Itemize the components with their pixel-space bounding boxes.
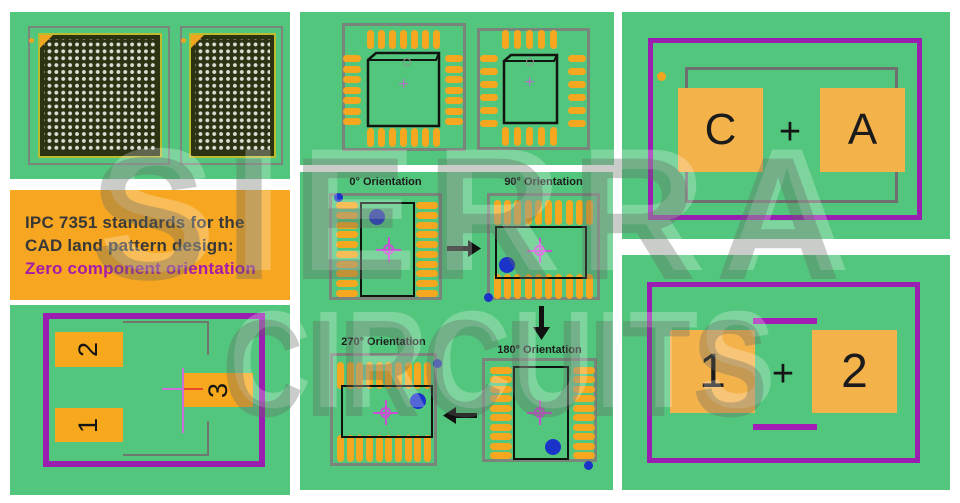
polarity-bar-top [753, 318, 817, 324]
pads-bottom [337, 435, 431, 462]
qfp-panel [300, 12, 614, 165]
orientation-label-270: 270° Orientation [330, 336, 437, 348]
pad [343, 66, 361, 73]
pad [367, 128, 374, 147]
pad [378, 30, 385, 49]
pin1-marker-dot [545, 439, 561, 455]
pad [347, 435, 354, 462]
origin-crosshair-icon [381, 242, 396, 257]
pad [343, 118, 361, 125]
pads-top [494, 200, 593, 225]
footprint-180deg [482, 358, 597, 462]
pin1-dot-icon [29, 38, 34, 43]
one-two-panel: 1 + 2 [622, 255, 950, 490]
pad [416, 280, 438, 287]
chip-outline-bottom [123, 454, 209, 456]
chip-pad-1: 1 [55, 408, 123, 442]
pin1-dimple-icon [403, 58, 411, 66]
pad-2: 2 [812, 330, 897, 413]
chip-outline-right-lower [207, 421, 209, 456]
anode-pad: A [820, 88, 905, 172]
origin-crosshair-icon [532, 405, 547, 420]
ca-panel: C + A [622, 12, 950, 239]
pad [336, 202, 358, 209]
pad [336, 261, 358, 268]
pad [356, 435, 363, 462]
plus-sign: + [772, 111, 808, 154]
pad [376, 435, 383, 462]
pad [480, 120, 498, 127]
pad [573, 443, 595, 450]
pad [490, 367, 512, 374]
pad [336, 241, 358, 248]
orientation-label-90: 90° Orientation [487, 176, 600, 188]
pad-1-label: 1 [699, 344, 726, 399]
pad [422, 128, 429, 147]
pad [514, 30, 521, 49]
title-line-2: CAD land pattern design: [25, 234, 290, 257]
pad [480, 68, 498, 75]
pad [445, 97, 463, 104]
pads-right [573, 367, 595, 459]
orientation-panel: 0° Orientation 90° Orientation 270° Orie… [300, 172, 613, 490]
pad [400, 128, 407, 147]
chip-outline-right-upper [207, 321, 209, 355]
pin1-marker-dot [499, 257, 515, 273]
pad [395, 435, 402, 462]
plus-sign: + [765, 353, 801, 396]
pad [416, 290, 438, 297]
pad [343, 55, 361, 62]
pad [573, 433, 595, 440]
pad [573, 386, 595, 393]
pad [416, 202, 438, 209]
pad [445, 118, 463, 125]
pad [389, 30, 396, 49]
pad [526, 30, 533, 49]
pad-2-label: 2 [841, 344, 868, 399]
footprint-0deg [329, 193, 442, 300]
bga-panel [10, 12, 290, 179]
pad [502, 30, 509, 49]
bga-large-ball-grid [44, 39, 156, 152]
pad [343, 87, 361, 94]
chip-pad-3: 3 [184, 373, 253, 407]
center-plus-icon [399, 79, 408, 88]
pad [573, 395, 595, 402]
pad [416, 231, 438, 238]
pad [389, 128, 396, 147]
pad [416, 241, 438, 248]
pad [411, 128, 418, 147]
origin-crosshair-icon [532, 243, 547, 258]
corner-marker-dot [433, 359, 442, 368]
pad [568, 68, 586, 75]
pad [411, 30, 418, 49]
pads-left [490, 367, 512, 459]
pad [336, 280, 358, 287]
pad [337, 435, 344, 462]
pad [416, 270, 438, 277]
pad [366, 435, 373, 462]
orientation-label-0: 0° Orientation [329, 176, 442, 188]
cathode-label: C [705, 105, 737, 155]
pad [336, 290, 358, 297]
pad-1: 1 [670, 330, 755, 413]
pad [400, 30, 407, 49]
pad [385, 435, 392, 462]
pad [433, 30, 440, 49]
pad [445, 76, 463, 83]
pad [545, 200, 552, 225]
title-box: IPC 7351 standards for the CAD land patt… [10, 190, 290, 300]
pad [538, 30, 545, 49]
bga-large [38, 33, 162, 158]
pad [514, 200, 521, 225]
origin-crosshair-hline [162, 388, 184, 390]
pin1-dot-icon [181, 38, 186, 43]
center-plus-icon [525, 77, 534, 86]
pad [445, 87, 463, 94]
bga-small [189, 33, 276, 158]
pad [480, 94, 498, 101]
pad [586, 274, 593, 299]
pad [555, 200, 562, 225]
anode-label: A [848, 105, 877, 155]
pad [480, 81, 498, 88]
origin-crosshair-vline [182, 368, 184, 433]
polarity-bar-bottom [753, 424, 817, 430]
pad [416, 212, 438, 219]
pad [343, 97, 361, 104]
qfp-large-pads-right [445, 55, 463, 125]
bga-small-ball-grid [195, 39, 270, 152]
qfp-small-pads-top [502, 30, 557, 49]
pad [494, 200, 501, 225]
pad [504, 200, 511, 225]
pad [445, 55, 463, 62]
pad [490, 414, 512, 421]
pads-right [416, 202, 438, 297]
arrow-right-icon [447, 240, 481, 257]
pad [422, 30, 429, 49]
qfp-large-pads-bottom [367, 128, 440, 147]
pad [490, 424, 512, 431]
pad [336, 222, 358, 229]
pad [573, 405, 595, 412]
pin1-corner-marker-icon [191, 35, 204, 48]
pin1-marker-dot [369, 209, 385, 225]
pad [343, 108, 361, 115]
pad [490, 395, 512, 402]
corner-marker-dot [584, 461, 593, 470]
pad [490, 386, 512, 393]
pin1-dimple-icon [526, 58, 534, 66]
qfp-small-pads-right [568, 55, 586, 127]
pad [433, 128, 440, 147]
chip-pad-3-label: 3 [203, 382, 234, 397]
pad [573, 376, 595, 383]
pad [416, 261, 438, 268]
pad [502, 127, 509, 146]
pad [414, 435, 421, 462]
pad [480, 107, 498, 114]
pad [424, 435, 431, 462]
pad [378, 128, 385, 147]
footprint-90deg [487, 193, 600, 300]
footprint-270deg [330, 353, 437, 466]
pad [568, 107, 586, 114]
infographic-canvas: IPC 7351 standards for the CAD land patt… [0, 0, 960, 503]
arrow-down-icon [533, 306, 550, 340]
pad [343, 76, 361, 83]
pad [405, 435, 412, 462]
pad [336, 231, 358, 238]
pad [490, 405, 512, 412]
corner-marker-dot [334, 193, 343, 202]
chip-pad-1-label: 1 [74, 417, 105, 432]
origin-crosshair-red-segment [184, 388, 203, 390]
pads-left [336, 202, 358, 297]
pad [490, 376, 512, 383]
pad [336, 212, 358, 219]
pad [568, 94, 586, 101]
pad [538, 127, 545, 146]
pad [568, 81, 586, 88]
pad [336, 251, 358, 258]
pad [490, 433, 512, 440]
pad [490, 452, 512, 459]
qfp-large-pads-left [343, 55, 361, 125]
chip-pad-2-label: 2 [74, 342, 105, 357]
qfp-small-pads-left [480, 55, 498, 127]
pad [568, 120, 586, 127]
pin1-marker-dot [410, 393, 426, 409]
pad [535, 200, 542, 225]
orientation-label-180: 180° Orientation [482, 344, 597, 356]
pad [573, 367, 595, 374]
pad [573, 424, 595, 431]
pad [490, 443, 512, 450]
pad [525, 200, 532, 225]
pad [336, 270, 358, 277]
pad [573, 452, 595, 459]
title-line-3: Zero component orientation [25, 257, 290, 280]
pad [445, 108, 463, 115]
arrow-left-icon [443, 407, 477, 424]
pin1-corner-marker-icon [40, 35, 53, 48]
pad [480, 55, 498, 62]
qfp-large-pads-top [367, 30, 440, 49]
pad [550, 30, 557, 49]
chip-outline-top [123, 321, 209, 323]
qfp-small-pads-bottom [502, 127, 557, 146]
pad [568, 55, 586, 62]
chip-panel: 2 1 3 [10, 305, 290, 495]
cathode-pad: C [678, 88, 763, 172]
pad [445, 66, 463, 73]
pad [576, 200, 583, 225]
pad [550, 127, 557, 146]
pin1-dot-icon [657, 72, 666, 81]
pad [367, 30, 374, 49]
title-line-1: IPC 7351 standards for the [25, 211, 290, 234]
corner-marker-dot [484, 293, 493, 302]
pad [514, 127, 521, 146]
pad [573, 414, 595, 421]
chip-pad-2: 2 [55, 332, 123, 367]
pad [566, 200, 573, 225]
pad [416, 251, 438, 258]
origin-crosshair-icon [378, 405, 393, 420]
pad [526, 127, 533, 146]
pad [416, 222, 438, 229]
pad [586, 200, 593, 225]
